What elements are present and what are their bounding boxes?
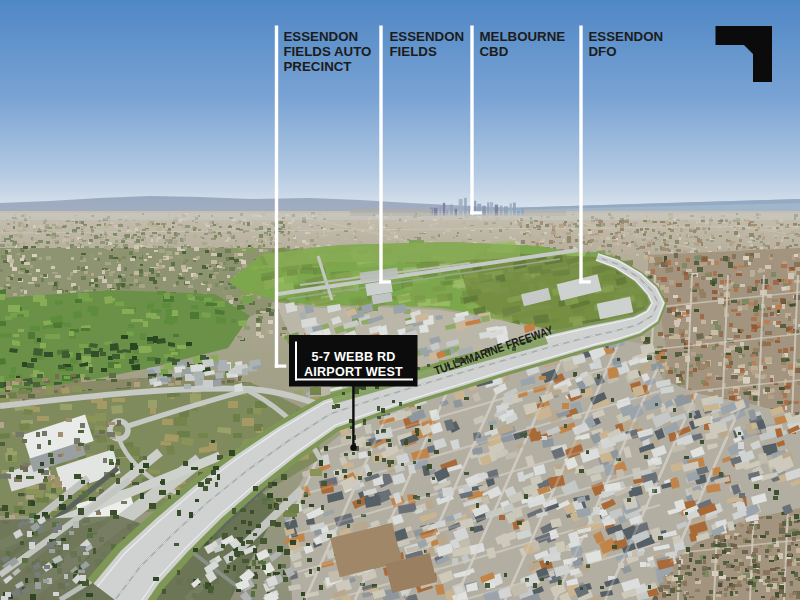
svg-text:FIELDS AUTO: FIELDS AUTO (284, 44, 372, 59)
svg-text:PRECINCT: PRECINCT (284, 59, 352, 74)
svg-text:ESSENDON: ESSENDON (589, 29, 664, 44)
svg-text:FIELDS: FIELDS (390, 44, 437, 59)
svg-text:MELBOURNE: MELBOURNE (480, 29, 566, 44)
svg-text:ESSENDON: ESSENDON (390, 29, 465, 44)
svg-text:ESSENDON: ESSENDON (284, 29, 359, 44)
svg-text:5-7 WEBB RD: 5-7 WEBB RD (311, 350, 395, 364)
svg-text:DFO: DFO (589, 44, 617, 59)
svg-text:CBD: CBD (480, 44, 509, 59)
svg-text:AIRPORT WEST: AIRPORT WEST (304, 365, 403, 379)
